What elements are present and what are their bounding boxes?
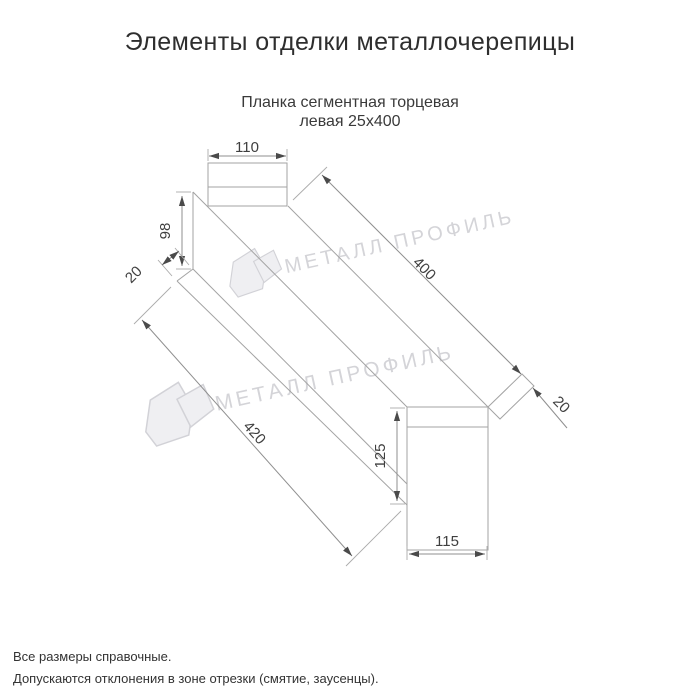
watermark-text: МЕТАЛЛ ПРОФИЛЬ: [283, 206, 517, 278]
page: Элементы отделки металлочерепицы Планка …: [0, 0, 700, 700]
dim-label-20-right: 20: [549, 393, 573, 417]
dim-label-98: 98: [157, 223, 174, 240]
dim-20-right: 20: [533, 388, 573, 428]
dim-125: 125: [372, 408, 405, 504]
metal-profile-logo-icon: [137, 376, 219, 448]
footer-notes: Все размеры справочные. Допускаются откл…: [13, 646, 379, 690]
technical-drawing: МЕТАЛЛ ПРОФИЛЬ МЕТАЛЛ ПРОФИЛЬ: [0, 0, 700, 700]
dim-400: 400: [293, 167, 521, 374]
dim-label-115: 115: [435, 533, 459, 550]
right-end-face: [407, 407, 488, 550]
dim-label-125: 125: [372, 443, 389, 468]
footer-note-2: Допускаются отклонения в зоне отрезки (с…: [13, 668, 379, 690]
right-flange: [488, 374, 534, 419]
left-end-face: [208, 163, 287, 206]
watermark-upper: МЕТАЛЛ ПРОФИЛЬ: [223, 192, 518, 298]
dim-label-420: 420: [240, 418, 269, 448]
dim-115: 115: [407, 533, 487, 560]
dim-20-left: 20: [122, 248, 189, 287]
watermark-lower: МЕТАЛЛ ПРОФИЛЬ: [137, 323, 460, 448]
footer-note-1: Все размеры справочные.: [13, 646, 379, 668]
dim-label-20-left: 20: [122, 263, 146, 287]
metal-profile-logo-icon: [223, 244, 285, 298]
dim-label-400: 400: [409, 254, 439, 284]
dim-110: 110: [208, 139, 287, 161]
dim-98: 98: [157, 192, 191, 269]
dim-label-110: 110: [235, 139, 259, 156]
